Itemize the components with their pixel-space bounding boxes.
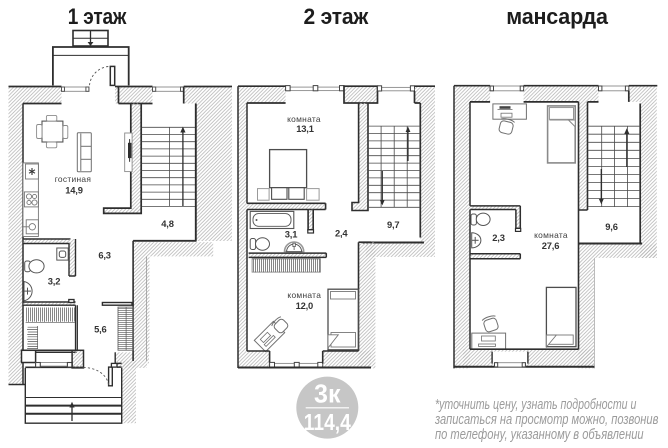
svg-text:1 этаж: 1 этаж: [68, 4, 127, 29]
svg-text:3к: 3к: [314, 379, 341, 409]
svg-text:мансарда: мансарда: [506, 4, 608, 29]
svg-text:27,6: 27,6: [542, 240, 559, 251]
svg-text:2 этаж: 2 этаж: [303, 4, 368, 29]
svg-text:3,2: 3,2: [48, 276, 60, 287]
svg-text:3,1: 3,1: [285, 229, 297, 240]
svg-text:гостиная: гостиная: [55, 174, 91, 184]
svg-text:2,3: 2,3: [492, 232, 504, 243]
svg-text:114,4: 114,4: [304, 409, 351, 435]
svg-text:2,4: 2,4: [335, 227, 348, 238]
svg-text:14,9: 14,9: [65, 185, 82, 196]
svg-text:*уточнить цену, узнать подробн: *уточнить цену, узнать подробности и: [435, 397, 636, 413]
svg-text:по телефону, указанному в объя: по телефону, указанному в объявлении: [435, 427, 644, 443]
svg-text:6,3: 6,3: [98, 250, 110, 261]
svg-text:9,6: 9,6: [605, 221, 617, 232]
svg-text:записаться на просмотр можно,: записаться на просмотр можно, позвонив: [434, 412, 658, 428]
svg-text:комната: комната: [534, 230, 568, 240]
svg-text:13,1: 13,1: [296, 123, 313, 134]
svg-text:12,0: 12,0: [296, 300, 313, 311]
svg-text:4,8: 4,8: [161, 218, 173, 229]
svg-text:9,7: 9,7: [387, 219, 399, 230]
svg-text:5,6: 5,6: [94, 324, 106, 335]
svg-text:комната: комната: [287, 290, 321, 300]
